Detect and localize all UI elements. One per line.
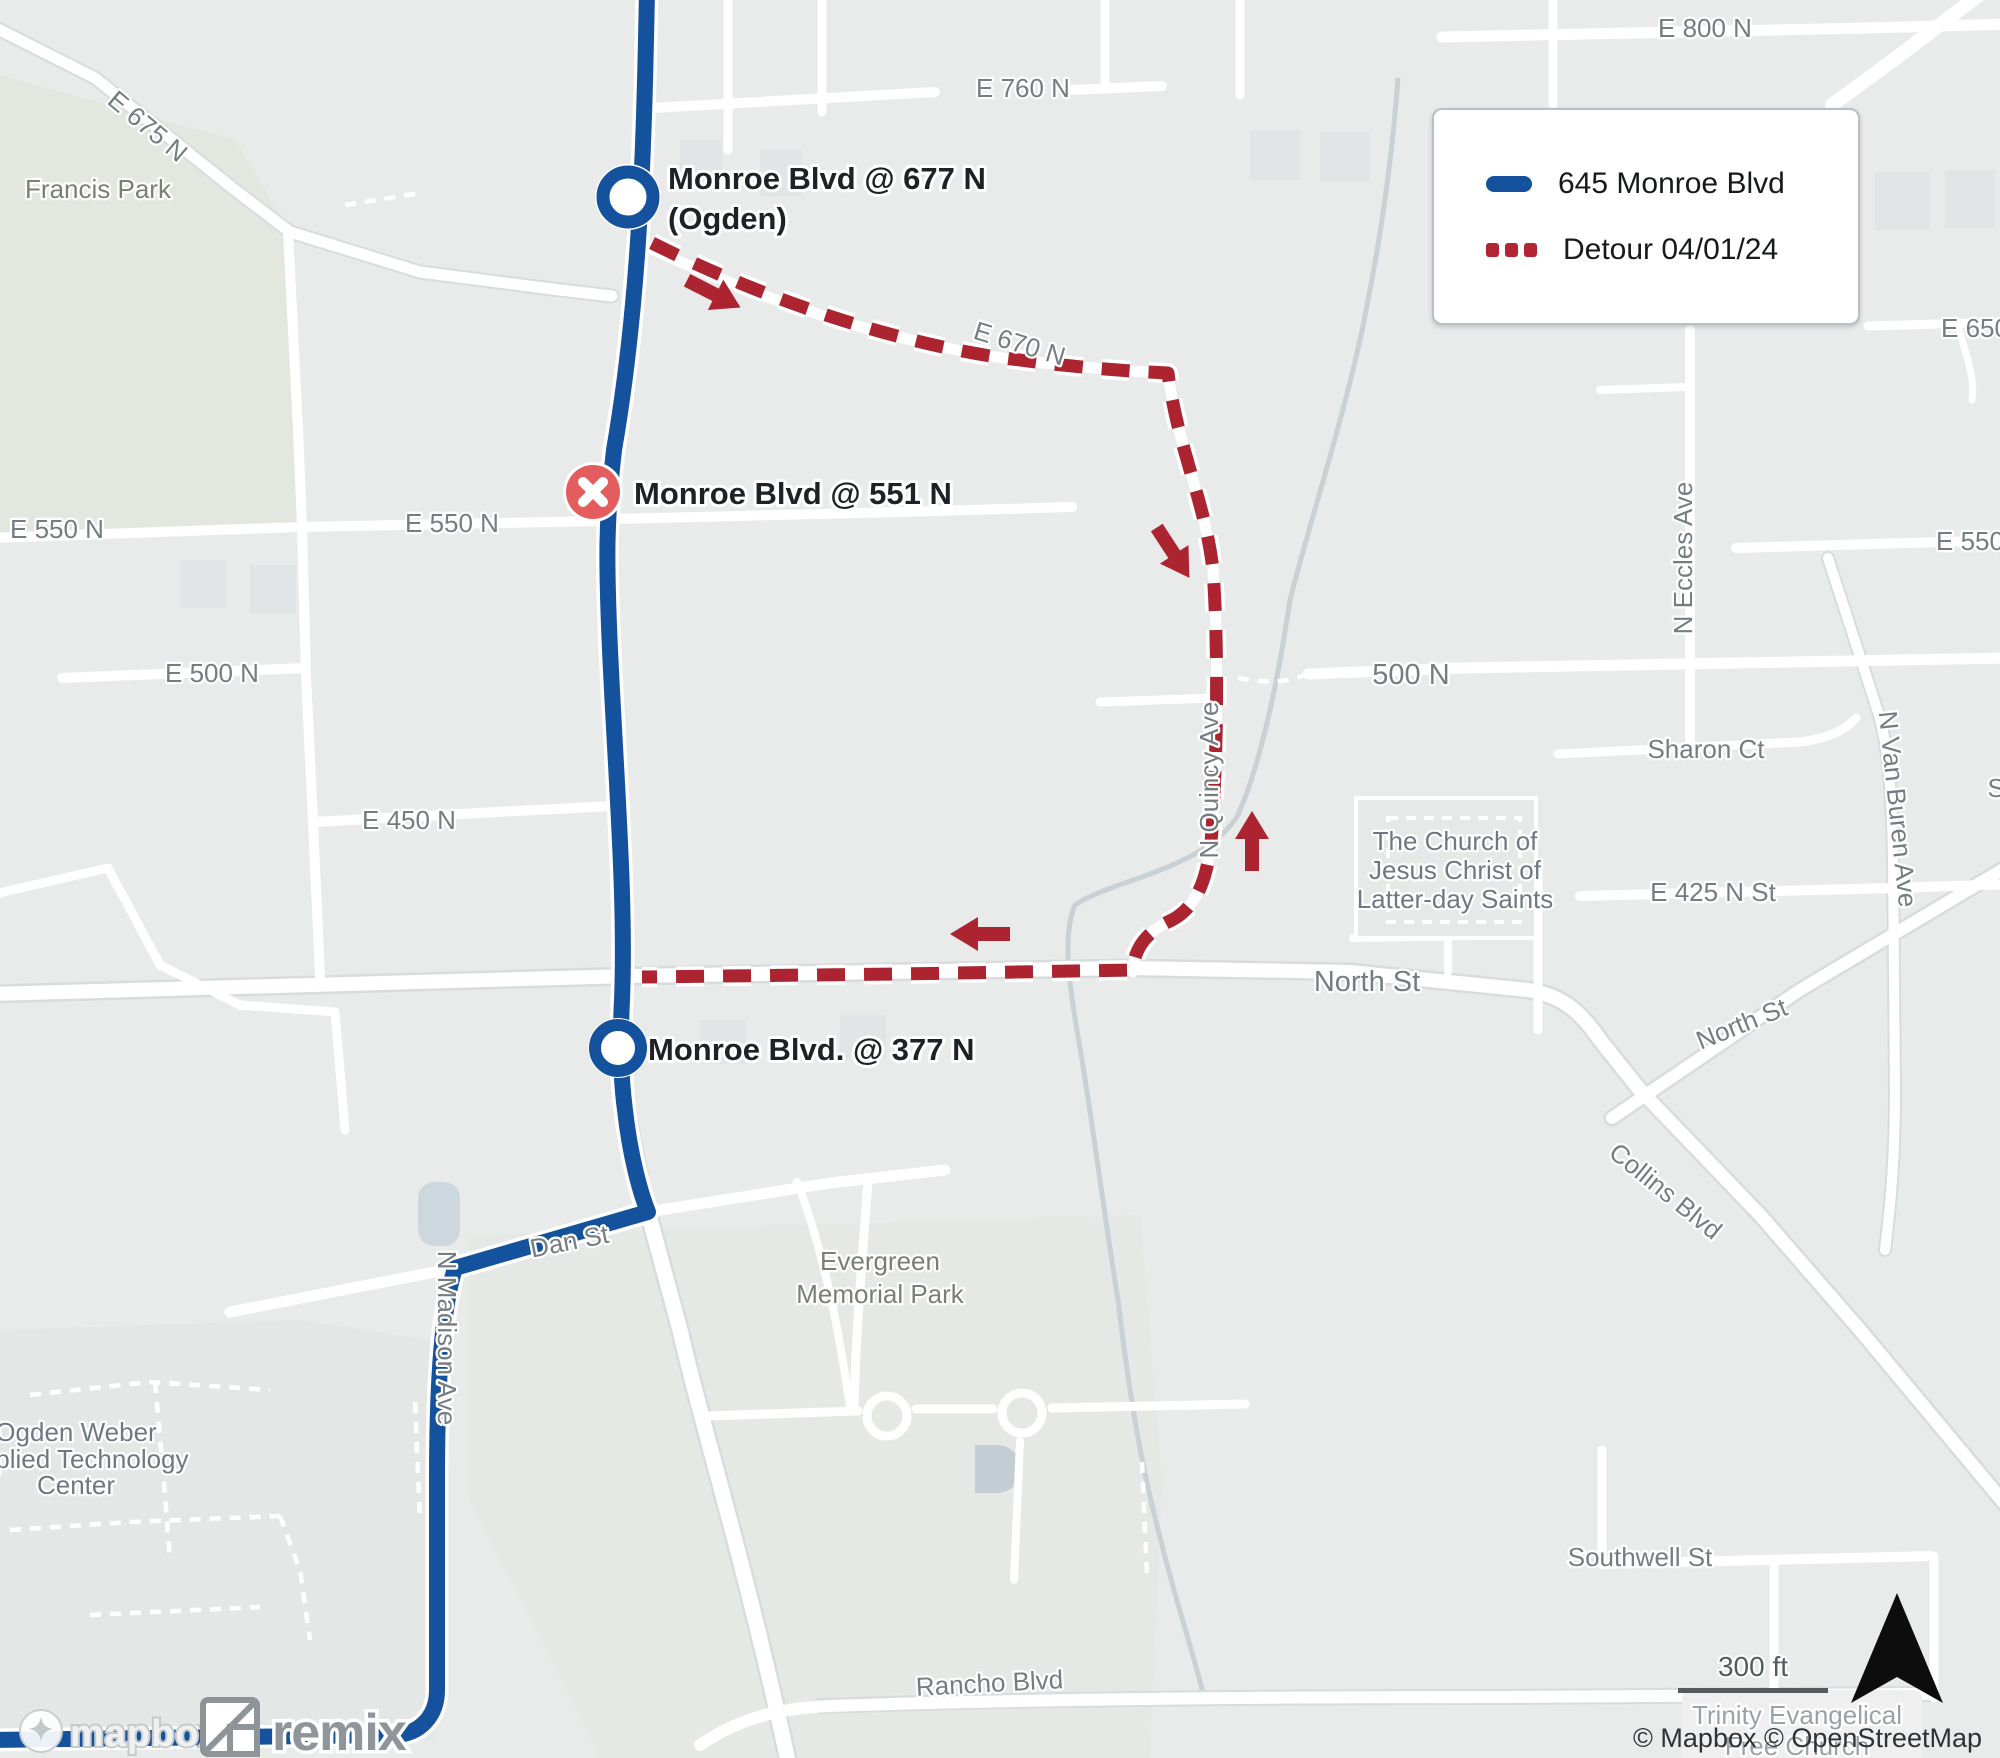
label-stop-677n-line2: (Ogden) — [668, 201, 787, 236]
label-e650: E 650 — [1941, 313, 2000, 343]
scale-line — [1678, 1688, 1828, 1693]
map-attribution[interactable]: © Mapbox © OpenStreetMap — [1633, 1723, 1982, 1753]
remix-logo-icon — [203, 1700, 257, 1754]
legend-panel: 645 Monroe Blvd Detour 04/01/24 — [1432, 108, 1860, 325]
label-s-partial: S — [1987, 773, 2000, 803]
label-e550n-mid: E 550 N — [405, 508, 499, 538]
legend-route-label: 645 Monroe Blvd — [1558, 167, 1785, 201]
scale-bar: 300 ft — [1678, 1651, 1828, 1693]
label-north-st-diag: North St — [1692, 992, 1792, 1056]
label-stop-677n-line1: Monroe Blvd @ 677 N — [668, 161, 986, 196]
pond — [418, 1182, 460, 1246]
label-francis-park: Francis Park — [25, 174, 172, 204]
label-stop-551n: Monroe Blvd @ 551 N — [634, 476, 952, 511]
remix-wordmark: remix — [272, 1704, 407, 1758]
label-n-eccles-ave: N Eccles Ave — [1668, 482, 1698, 635]
detour-line-swatch — [1486, 243, 1537, 257]
legend-row-detour: Detour 04/01/24 — [1486, 233, 1858, 267]
label-e800n: E 800 N — [1658, 13, 1752, 43]
legend-detour-label: Detour 04/01/24 — [1563, 233, 1778, 267]
label-e425n-st: E 425 N St — [1650, 877, 1777, 907]
label-ogden-weber-3: Center — [37, 1470, 115, 1500]
arrow-south-quincy — [1142, 518, 1203, 587]
mapbox-logo[interactable]: mapbox — [20, 1710, 222, 1755]
stop-marker-551n-closed[interactable] — [563, 462, 623, 522]
label-n-van-buren-ave: N Van Buren Ave — [1873, 709, 1923, 908]
label-evergreen-2: Memorial Park — [796, 1279, 965, 1309]
label-e450n: E 450 N — [362, 805, 456, 835]
detour-line — [642, 243, 1217, 977]
stop-labels: Monroe Blvd @ 677 N (Ogden) Monroe Blvd … — [634, 161, 986, 1067]
label-n-madison-ave: N Madison Ave — [432, 1251, 462, 1425]
label-north-st: North St — [1314, 966, 1420, 998]
map-screenshot: { "legend": { "route_label": "645 Monroe… — [0, 0, 2000, 1758]
label-ogden-weber-1: Ogden Weber — [0, 1417, 157, 1447]
stop-marker-677n[interactable] — [595, 164, 661, 230]
mapbox-wordmark: mapbox — [70, 1713, 222, 1755]
arrow-north-quincy — [1235, 811, 1269, 871]
legend-row-route: 645 Monroe Blvd — [1486, 167, 1858, 201]
label-500n: 500 N — [1372, 659, 1449, 691]
remix-logo[interactable]: remix — [203, 1700, 407, 1758]
label-southwell-st: Southwell St — [1568, 1542, 1713, 1572]
label-e500n: E 500 N — [165, 658, 259, 688]
label-church-1: The Church of — [1373, 826, 1539, 856]
label-e760n: E 760 N — [976, 73, 1070, 103]
label-church-3: Latter-day Saints — [1357, 884, 1554, 914]
label-n-quincy-ave: N Quincy Ave — [1194, 701, 1224, 858]
label-sharon-ct: Sharon Ct — [1647, 734, 1765, 764]
label-e550n-left: E 550 N — [10, 514, 104, 544]
arrow-west-northst — [950, 917, 1010, 951]
scale-label: 300 ft — [1718, 1651, 1788, 1682]
detour-arrows — [679, 265, 1269, 951]
stop-marker-377n[interactable] — [588, 1018, 648, 1078]
route-line-swatch — [1486, 176, 1532, 192]
label-evergreen-1: Evergreen — [820, 1246, 940, 1276]
label-e550-right: E 550 — [1936, 526, 2000, 556]
label-stop-377n: Monroe Blvd. @ 377 N — [648, 1032, 975, 1067]
label-church-2: Jesus Christ of — [1369, 855, 1542, 885]
